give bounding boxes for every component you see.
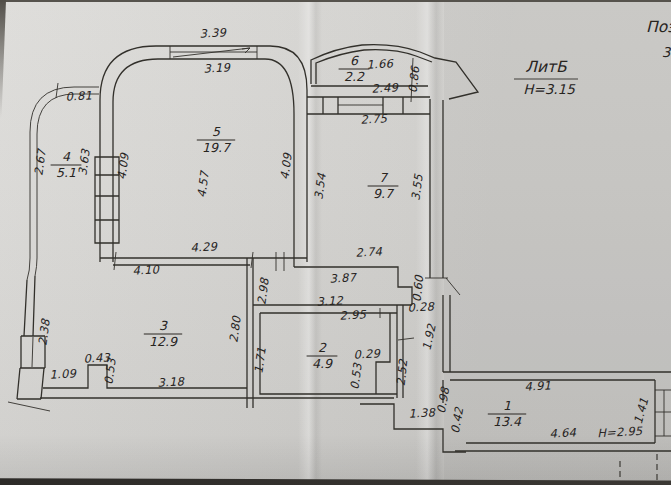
dimension-label: 2.52 <box>394 358 411 386</box>
dimension-label: 4.29 <box>190 239 219 254</box>
dimension-label: 4.09 <box>277 151 295 181</box>
dimension-label: 3.19 <box>203 60 232 75</box>
dimension-label: 0.53 <box>347 361 365 391</box>
dimension-label: 0.81 <box>65 88 92 103</box>
dimension-label: Н=2.95 <box>597 424 643 440</box>
room-area: 12.9 <box>149 334 178 349</box>
dimension-label: 3.63 <box>75 147 93 177</box>
room-number: 3 <box>159 318 168 333</box>
dimension-label: 3.18 <box>157 374 186 389</box>
room-number: 1 <box>503 398 511 413</box>
floor-plan-photo: 3.393.190.812.673.634.094.574.093.543.55… <box>0 0 671 485</box>
dimension-label: 3.39 <box>199 25 228 40</box>
dimension-label: 1.09 <box>49 366 78 381</box>
floor-plan-drawing: 3.393.190.812.673.634.094.574.093.543.55… <box>0 0 671 485</box>
building-liter-label: ЛитБ <box>525 58 568 76</box>
dimension-label: 0.53 <box>101 356 119 386</box>
window-and-tick-details <box>8 46 671 485</box>
corner-caption: Поэт <box>646 18 671 36</box>
dimension-label: 1.41 <box>631 396 651 425</box>
dimension-label: 0.86 <box>406 64 423 93</box>
dimension-label: 3.54 <box>311 172 329 201</box>
dimension-label: 0.29 <box>353 346 382 361</box>
dimension-label: 4.57 <box>194 169 212 199</box>
room-area: 13.4 <box>493 414 522 429</box>
room-number: 5 <box>212 124 221 139</box>
dimension-label: 0.28 <box>407 299 436 314</box>
walls <box>17 45 671 452</box>
dimension-label: 3.87 <box>329 270 358 285</box>
dimension-label: 2.67 <box>31 147 49 177</box>
dimension-label: 2.49 <box>371 80 400 95</box>
dimension-label: 4.91 <box>524 378 551 393</box>
dimension-label: 4.64 <box>549 425 577 440</box>
dimension-label: 2.80 <box>226 314 244 344</box>
dimension-label: 4.09 <box>114 151 132 181</box>
dimension-label: 2.74 <box>355 244 383 259</box>
room-area: 4.9 <box>312 356 333 371</box>
dimension-label: 4.10 <box>132 262 161 277</box>
dimension-label: 2.75 <box>360 111 388 126</box>
room-area: 19.7 <box>202 140 232 155</box>
annotations: ЛитБ Н=3.15 Поэт 3 <box>514 18 671 97</box>
room-number: 7 <box>379 170 389 185</box>
room-number: 2 <box>318 340 327 355</box>
room-area: 9.7 <box>373 186 395 201</box>
dimension-label: 0.98 <box>434 385 453 415</box>
dimension-label: 0.42 <box>448 406 466 435</box>
floor-height-label: Н=3.15 <box>523 81 576 97</box>
corner-number: 3 <box>662 44 671 60</box>
dimension-label: 1.66 <box>366 56 395 71</box>
room-number: 6 <box>350 53 359 68</box>
dimension-label: 3.55 <box>408 173 426 202</box>
room-number: 4 <box>62 149 71 164</box>
room-area: 2.2 <box>344 69 365 84</box>
dimension-label: 2.98 <box>254 276 272 306</box>
dimension-label: 1.38 <box>408 405 437 420</box>
dimension-label: 1.92 <box>419 322 438 351</box>
dimension-label: 1.71 <box>251 346 269 374</box>
room-area: 5.1 <box>56 165 76 180</box>
dimension-label: 3.12 <box>316 293 344 308</box>
dimension-label: 0.60 <box>410 273 427 302</box>
dimension-label: 2.38 <box>35 317 53 347</box>
dimension-label: 2.95 <box>339 307 367 322</box>
